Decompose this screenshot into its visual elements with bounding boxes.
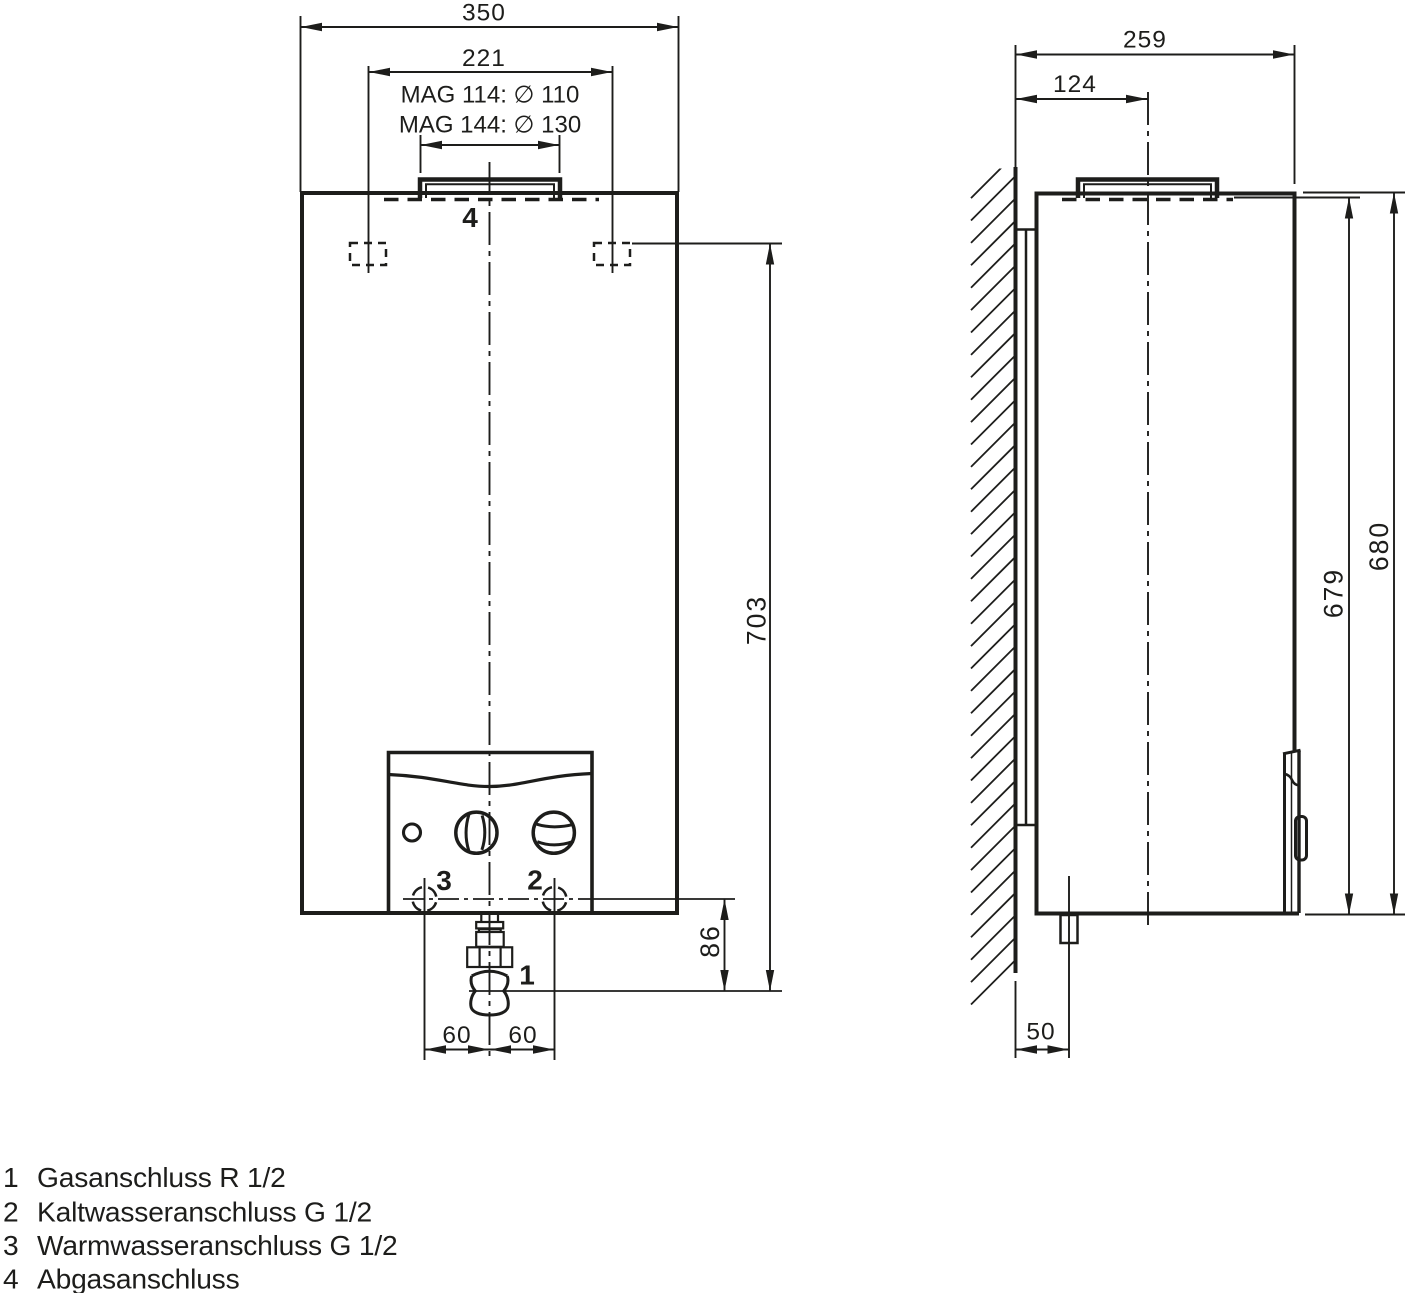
- svg-text:Gasanschluss R 1/2: Gasanschluss R 1/2: [37, 1161, 286, 1193]
- svg-text:221: 221: [462, 45, 506, 72]
- svg-text:50: 50: [1026, 1019, 1055, 1046]
- svg-text:124: 124: [1053, 71, 1097, 98]
- svg-text:Warmwasseranschluss G 1/2: Warmwasseranschluss G 1/2: [37, 1229, 398, 1261]
- svg-text:Kaltwasseranschluss G 1/2: Kaltwasseranschluss G 1/2: [37, 1196, 372, 1228]
- svg-text:Abgasanschluss: Abgasanschluss: [37, 1263, 240, 1293]
- svg-text:680: 680: [1364, 521, 1394, 571]
- svg-text:1: 1: [519, 960, 535, 991]
- svg-text:259: 259: [1123, 27, 1167, 54]
- svg-text:60: 60: [442, 1022, 471, 1049]
- svg-text:MAG 114: ∅ 110: MAG 114: ∅ 110: [401, 82, 580, 109]
- svg-text:4: 4: [3, 1263, 18, 1293]
- svg-text:679: 679: [1319, 568, 1349, 618]
- svg-text:2: 2: [527, 865, 543, 896]
- svg-text:1: 1: [3, 1161, 18, 1193]
- svg-text:86: 86: [695, 924, 725, 957]
- svg-text:4: 4: [462, 202, 478, 233]
- svg-text:3: 3: [436, 865, 452, 896]
- svg-text:2: 2: [3, 1196, 18, 1228]
- svg-text:703: 703: [742, 595, 772, 645]
- svg-text:60: 60: [508, 1022, 537, 1049]
- svg-text:350: 350: [462, 0, 506, 27]
- svg-text:3: 3: [3, 1229, 18, 1261]
- svg-text:MAG 144: ∅ 130: MAG 144: ∅ 130: [399, 112, 581, 139]
